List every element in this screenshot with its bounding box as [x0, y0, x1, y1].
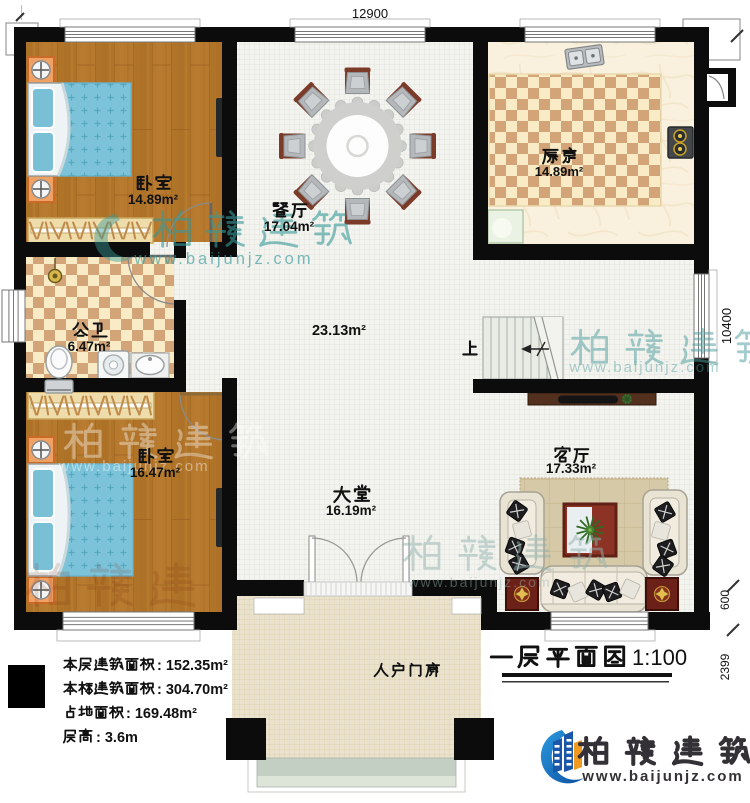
- svg-text:14.89m²: 14.89m²: [535, 164, 584, 179]
- svg-text:17.04m²: 17.04m²: [264, 219, 315, 234]
- svg-text:12900: 12900: [352, 6, 388, 21]
- svg-text:: 304.70m²: : 304.70m²: [157, 682, 228, 698]
- svg-text:14.89m²: 14.89m²: [128, 192, 179, 207]
- svg-text:23.13m²: 23.13m²: [312, 323, 366, 339]
- svg-text:600: 600: [718, 590, 732, 610]
- svg-text:2399: 2399: [718, 653, 732, 680]
- svg-text:www.baijunjz.com: www.baijunjz.com: [568, 359, 720, 376]
- svg-text:6.47m²: 6.47m²: [68, 339, 111, 354]
- svg-text:www.baijunjz.com: www.baijunjz.com: [133, 250, 313, 268]
- svg-text:17.33m²: 17.33m²: [546, 461, 597, 476]
- svg-text:: 169.48m²: : 169.48m²: [126, 706, 197, 722]
- svg-text:16.47m²: 16.47m²: [130, 465, 181, 480]
- svg-text:www.baijunjz.com: www.baijunjz.com: [581, 768, 743, 785]
- svg-text:: 152.35m²: : 152.35m²: [157, 658, 228, 674]
- svg-text:16.19m²: 16.19m²: [326, 503, 377, 518]
- svg-text:: 3.6m: : 3.6m: [96, 730, 138, 746]
- svg-text:www.baijunjz.com: www.baijunjz.com: [407, 574, 551, 590]
- svg-text:1:100: 1:100: [632, 645, 687, 670]
- svg-text:10400: 10400: [719, 308, 734, 344]
